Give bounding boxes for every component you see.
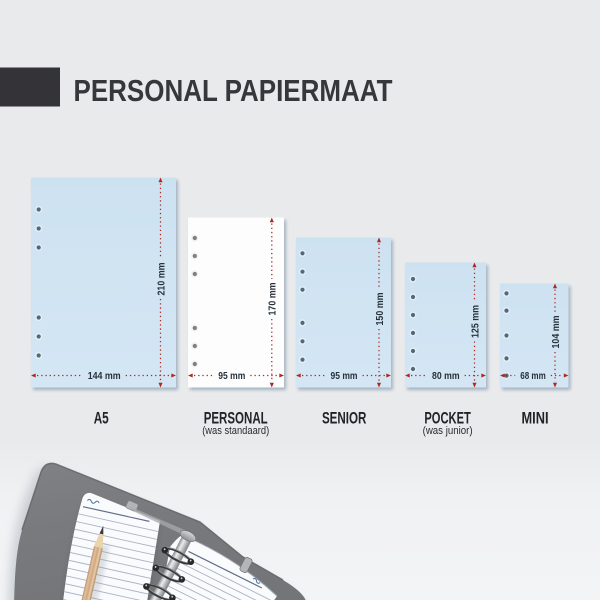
svg-text:PERSONAL PAPIERMAAT: PERSONAL PAPIERMAAT xyxy=(74,74,393,108)
svg-text:SENIOR: SENIOR xyxy=(322,409,367,428)
svg-text:95 mm: 95 mm xyxy=(218,370,245,382)
svg-text:95 mm: 95 mm xyxy=(331,370,358,382)
svg-text:125 mm: 125 mm xyxy=(469,305,481,338)
svg-text:A5: A5 xyxy=(94,409,109,428)
svg-text:144 mm: 144 mm xyxy=(88,370,121,382)
svg-text:(was junior): (was junior) xyxy=(423,425,473,437)
svg-text:210 mm: 210 mm xyxy=(155,263,167,296)
svg-text:68 mm: 68 mm xyxy=(520,370,546,382)
svg-text:104 mm: 104 mm xyxy=(550,316,562,349)
svg-text:150 mm: 150 mm xyxy=(374,293,386,326)
svg-text:80 mm: 80 mm xyxy=(432,370,460,382)
svg-text:170 mm: 170 mm xyxy=(267,283,279,316)
svg-text:(was standaard): (was standaard) xyxy=(202,425,269,437)
svg-text:MINI: MINI xyxy=(522,409,549,428)
